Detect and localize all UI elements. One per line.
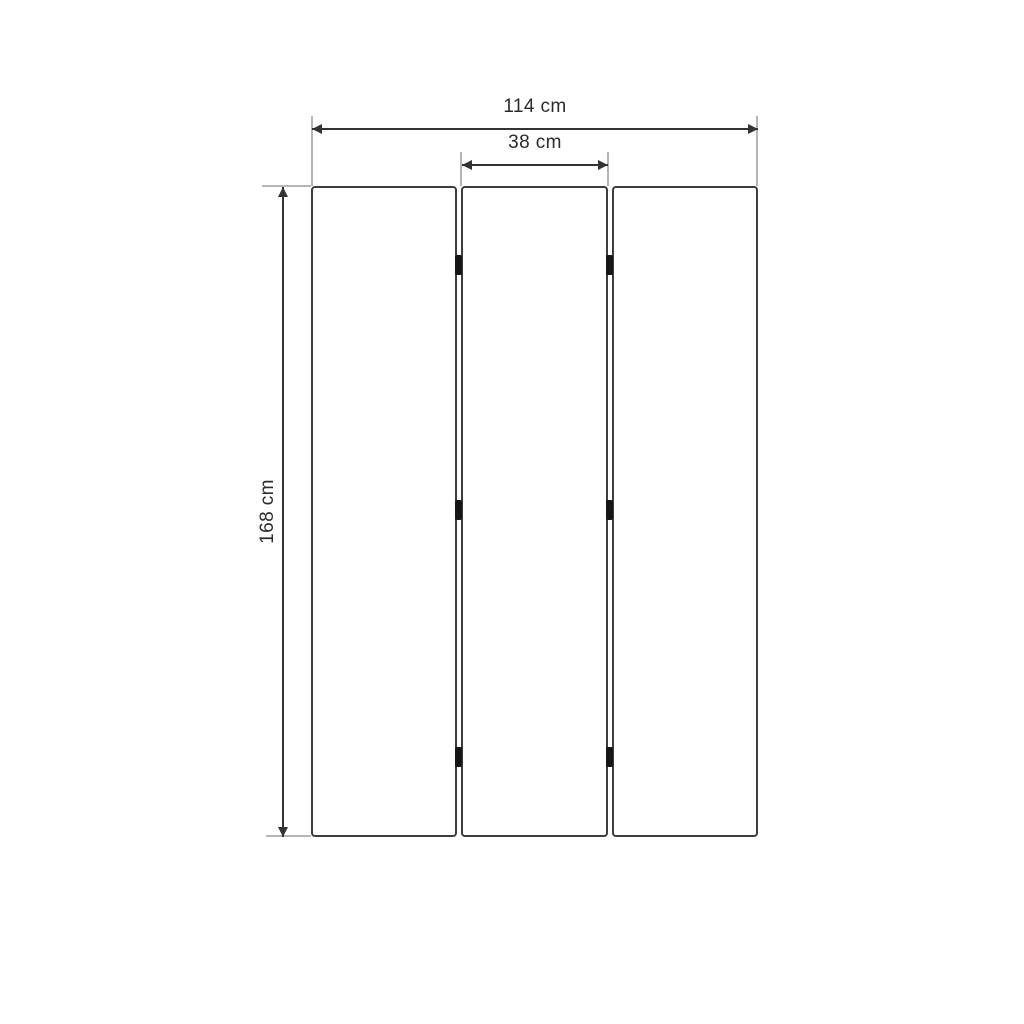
dimension-label-height-wrapper: 168 cm (248, 186, 286, 837)
dimension-line-height (282, 187, 284, 837)
hinge (606, 500, 613, 520)
dimension-label-panel-width: 38 cm (462, 133, 608, 152)
hinge (606, 255, 613, 275)
arrowhead-right-icon (598, 160, 608, 170)
hinge (455, 255, 462, 275)
dimension-label-height: 168 cm (258, 479, 277, 544)
arrowhead-down-icon (278, 827, 288, 837)
panel-left (311, 186, 457, 837)
arrowhead-left-icon (462, 160, 472, 170)
hinge (455, 747, 462, 767)
arrowhead-left-icon (312, 124, 322, 134)
arrowhead-up-icon (278, 187, 288, 197)
dimension-line-panel-width (462, 164, 608, 166)
dimension-diagram-canvas: 114 cm 38 cm 168 cm (0, 0, 1024, 1024)
arrowhead-right-icon (748, 124, 758, 134)
dimension-line-total-width (312, 128, 758, 130)
hinge (455, 500, 462, 520)
panel-right (612, 186, 758, 837)
hinge (606, 747, 613, 767)
dimension-label-total-width: 114 cm (312, 97, 758, 116)
panel-middle (461, 186, 608, 837)
